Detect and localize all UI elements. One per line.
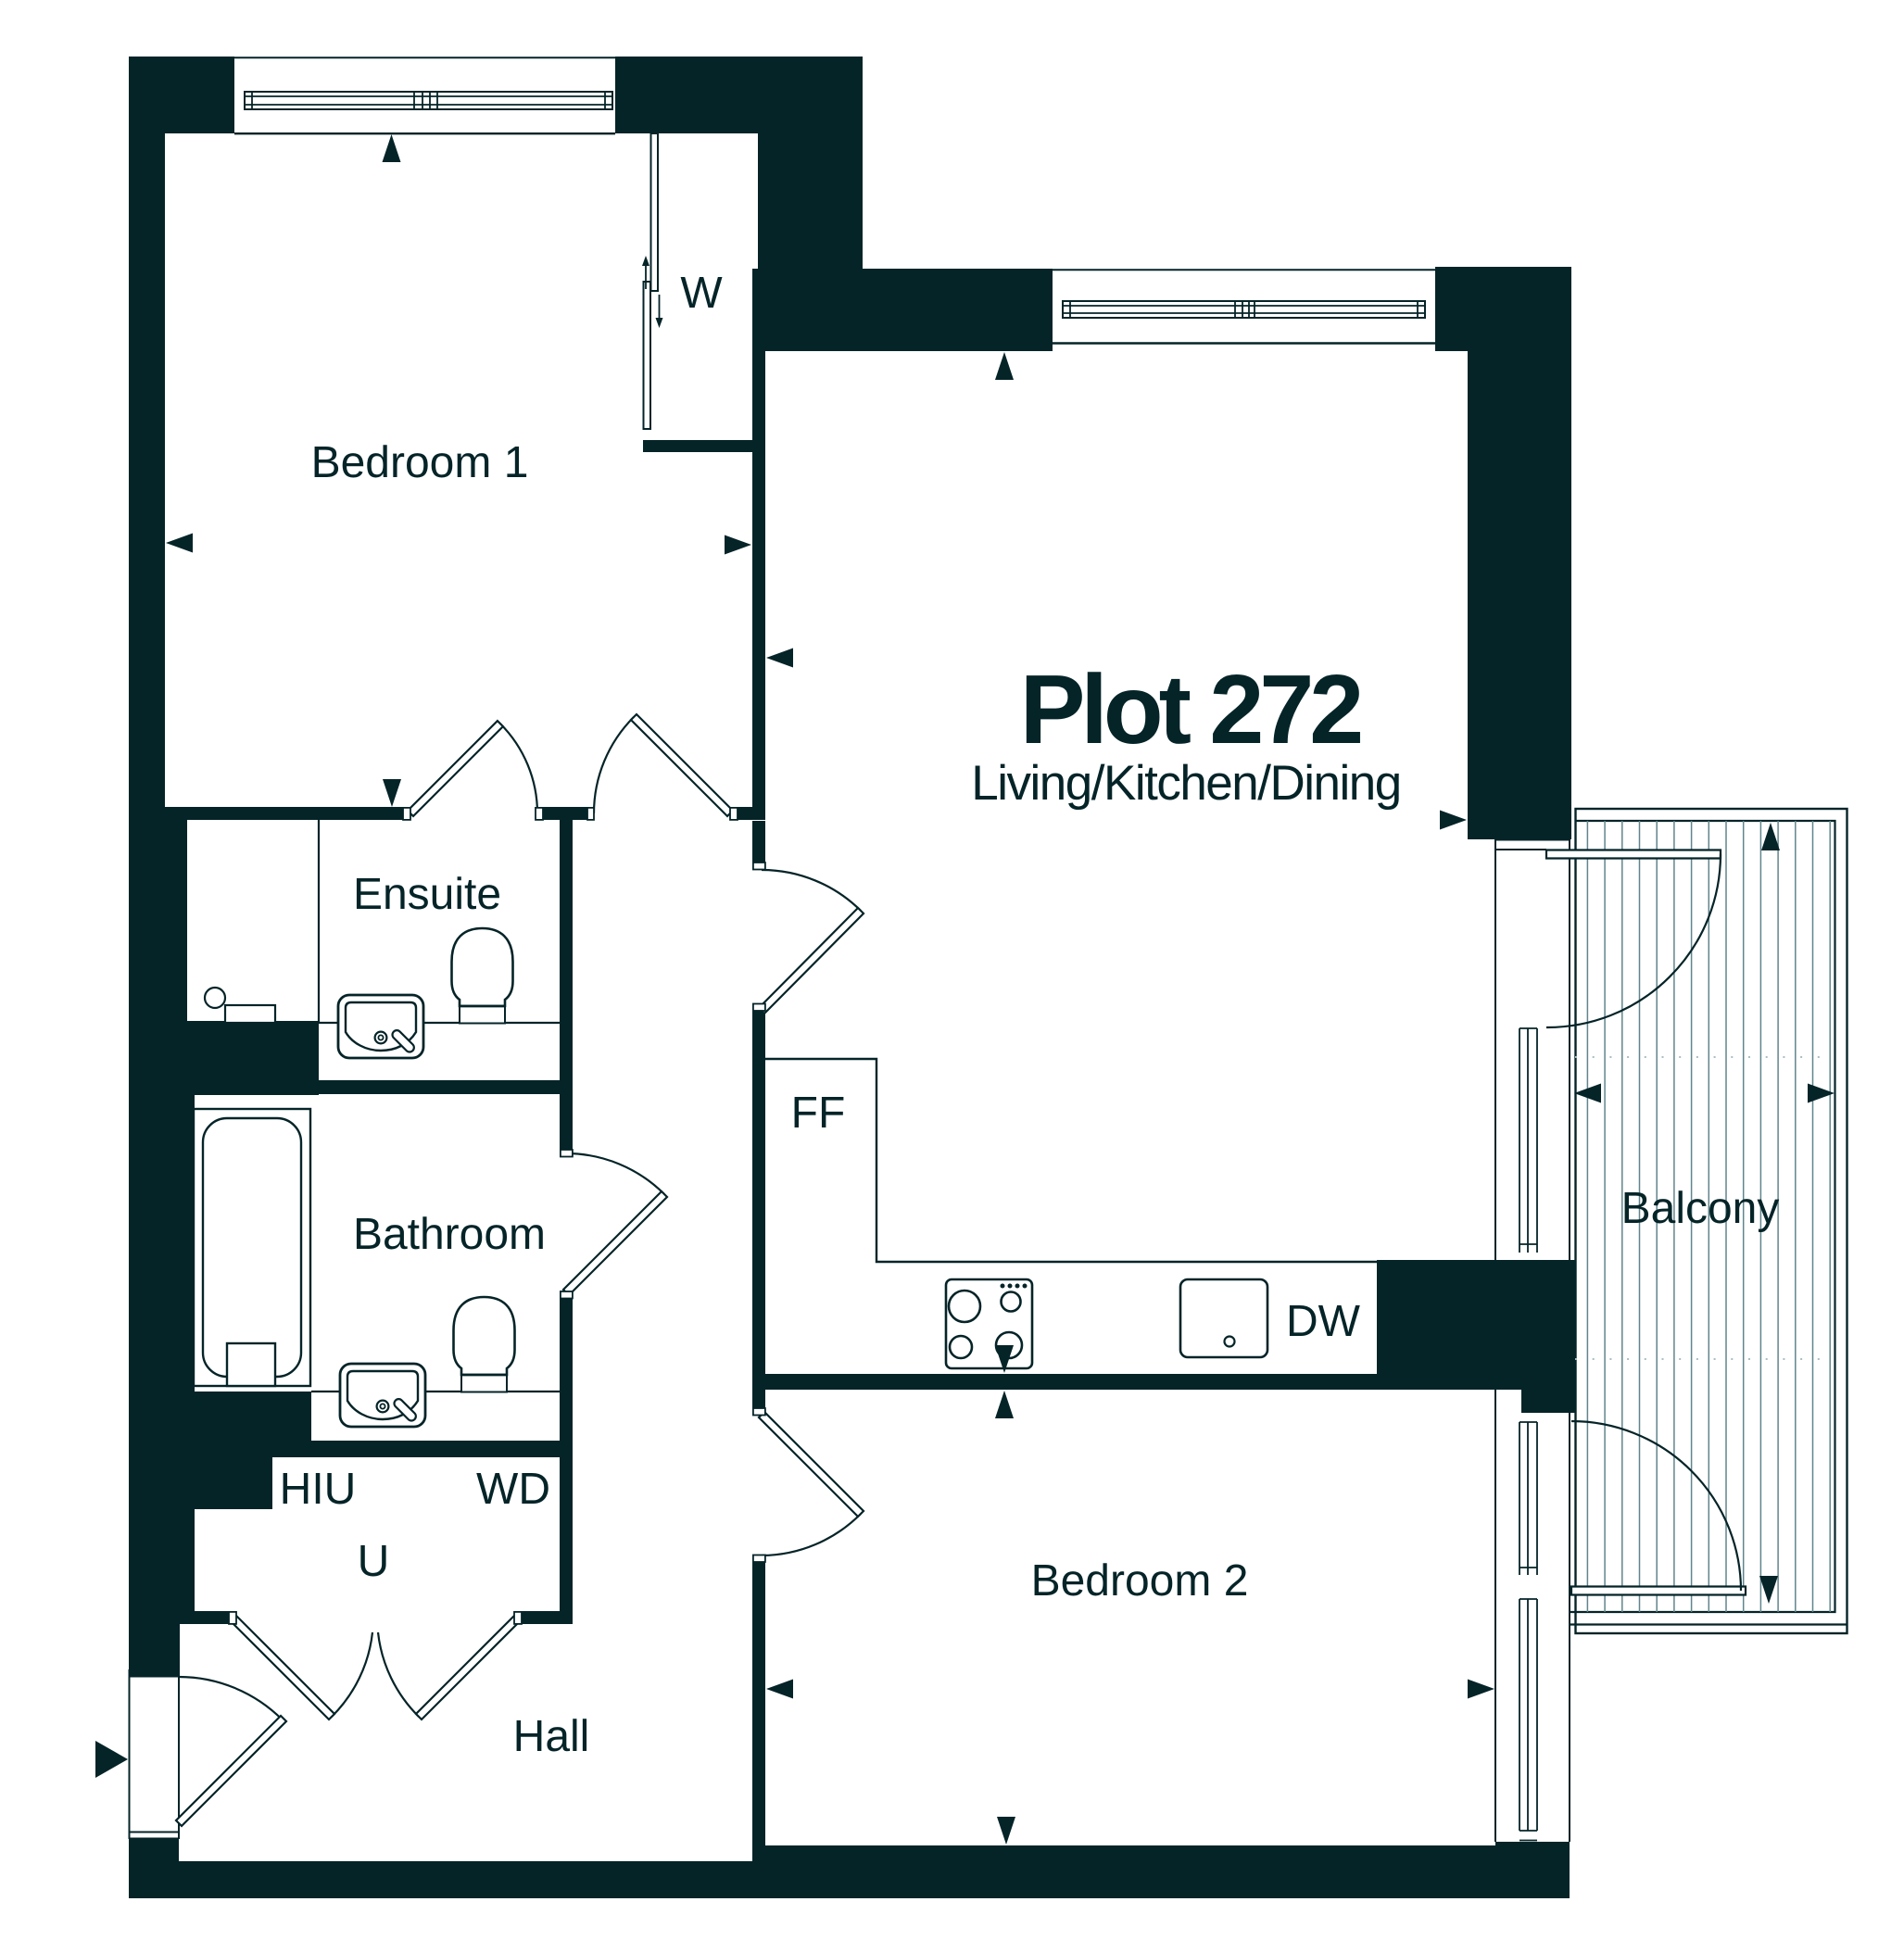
svg-text:Living/Kitchen/Dining: Living/Kitchen/Dining [971, 756, 1400, 811]
svg-text:Plot 272: Plot 272 [1020, 655, 1361, 764]
svg-text:WD: WD [476, 1465, 550, 1514]
svg-text:U: U [358, 1537, 390, 1586]
svg-text:Balcony: Balcony [1621, 1184, 1780, 1233]
svg-text:W: W [680, 269, 723, 318]
svg-text:Bedroom 2: Bedroom 2 [1031, 1556, 1249, 1606]
svg-text:Ensuite: Ensuite [353, 870, 501, 919]
svg-text:Hall: Hall [513, 1712, 590, 1761]
svg-text:FF: FF [791, 1089, 846, 1138]
svg-text:Bathroom: Bathroom [353, 1210, 546, 1259]
svg-text:HIU: HIU [280, 1465, 357, 1514]
svg-text:DW: DW [1286, 1297, 1361, 1346]
svg-text:Bedroom 1: Bedroom 1 [311, 438, 529, 487]
